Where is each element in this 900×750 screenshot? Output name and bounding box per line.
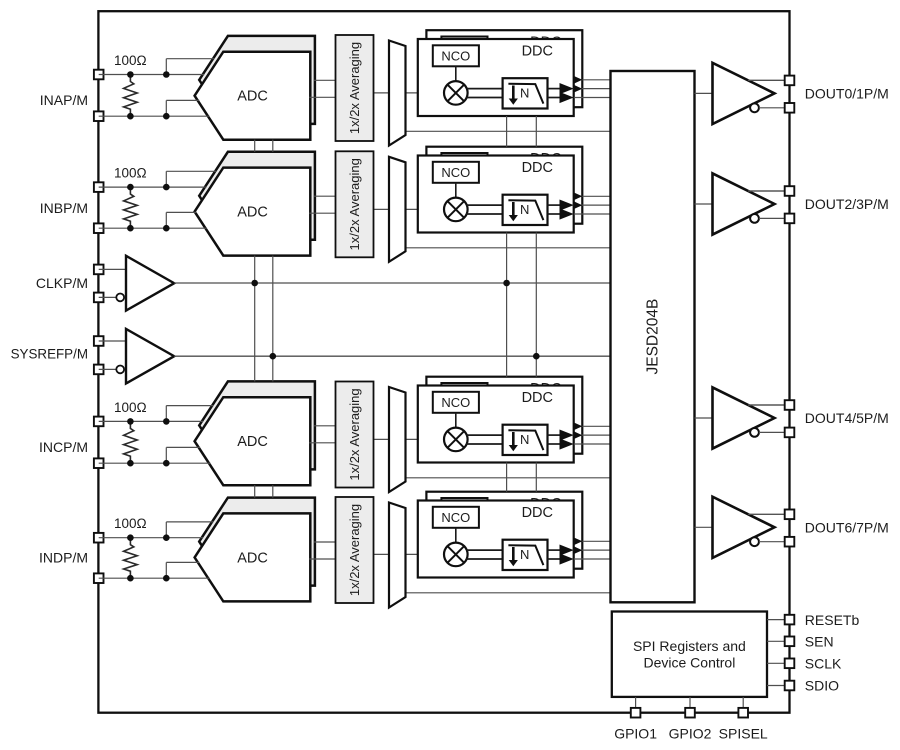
svg-text:1x/2x Averaging: 1x/2x Averaging bbox=[347, 42, 362, 134]
svg-text:1x/2x Averaging: 1x/2x Averaging bbox=[347, 504, 362, 596]
svg-text:NCO: NCO bbox=[441, 165, 470, 180]
svg-text:INAP/M: INAP/M bbox=[40, 92, 88, 108]
svg-text:N: N bbox=[520, 202, 529, 217]
svg-text:DDC: DDC bbox=[522, 160, 553, 176]
svg-text:DDC: DDC bbox=[522, 44, 553, 60]
svg-text:SYSREFP/M: SYSREFP/M bbox=[11, 347, 88, 362]
svg-text:100Ω: 100Ω bbox=[114, 53, 147, 68]
svg-text:INCP/M: INCP/M bbox=[39, 439, 88, 455]
svg-text:SDIO: SDIO bbox=[805, 678, 839, 694]
svg-text:Device Control: Device Control bbox=[643, 655, 735, 671]
svg-text:JESD204B: JESD204B bbox=[645, 299, 662, 375]
svg-text:DOUT6/7P/M: DOUT6/7P/M bbox=[805, 520, 889, 536]
svg-text:NCO: NCO bbox=[441, 395, 470, 410]
svg-text:DOUT4/5P/M: DOUT4/5P/M bbox=[805, 410, 889, 426]
svg-text:GPIO1: GPIO1 bbox=[614, 726, 657, 742]
svg-text:DDC: DDC bbox=[522, 505, 553, 521]
svg-text:SPISEL: SPISEL bbox=[719, 726, 768, 742]
svg-text:ADC: ADC bbox=[237, 205, 268, 221]
svg-text:INBP/M: INBP/M bbox=[40, 200, 88, 216]
svg-text:100Ω: 100Ω bbox=[114, 516, 147, 531]
svg-text:SEN: SEN bbox=[805, 634, 834, 650]
svg-text:CLKP/M: CLKP/M bbox=[36, 275, 88, 291]
svg-text:ADC: ADC bbox=[237, 89, 268, 105]
svg-text:NCO: NCO bbox=[441, 49, 470, 64]
svg-text:DDC: DDC bbox=[522, 390, 553, 406]
svg-text:NCO: NCO bbox=[441, 510, 470, 525]
svg-text:DOUT2/3P/M: DOUT2/3P/M bbox=[805, 196, 889, 212]
svg-text:N: N bbox=[520, 85, 529, 100]
svg-text:RESETb: RESETb bbox=[805, 612, 860, 628]
svg-text:SPI Registers and: SPI Registers and bbox=[633, 638, 746, 654]
svg-text:DOUT0/1P/M: DOUT0/1P/M bbox=[805, 86, 889, 102]
svg-text:GPIO2: GPIO2 bbox=[669, 726, 712, 742]
svg-text:ADC: ADC bbox=[237, 550, 268, 566]
svg-text:INDP/M: INDP/M bbox=[39, 550, 88, 566]
svg-text:ADC: ADC bbox=[237, 434, 268, 450]
svg-text:SCLK: SCLK bbox=[805, 656, 842, 672]
svg-text:N: N bbox=[520, 432, 529, 447]
svg-text:1x/2x Averaging: 1x/2x Averaging bbox=[347, 158, 362, 250]
svg-text:1x/2x Averaging: 1x/2x Averaging bbox=[347, 388, 362, 480]
svg-text:100Ω: 100Ω bbox=[114, 400, 147, 415]
svg-text:N: N bbox=[520, 547, 529, 562]
svg-text:100Ω: 100Ω bbox=[114, 166, 147, 181]
